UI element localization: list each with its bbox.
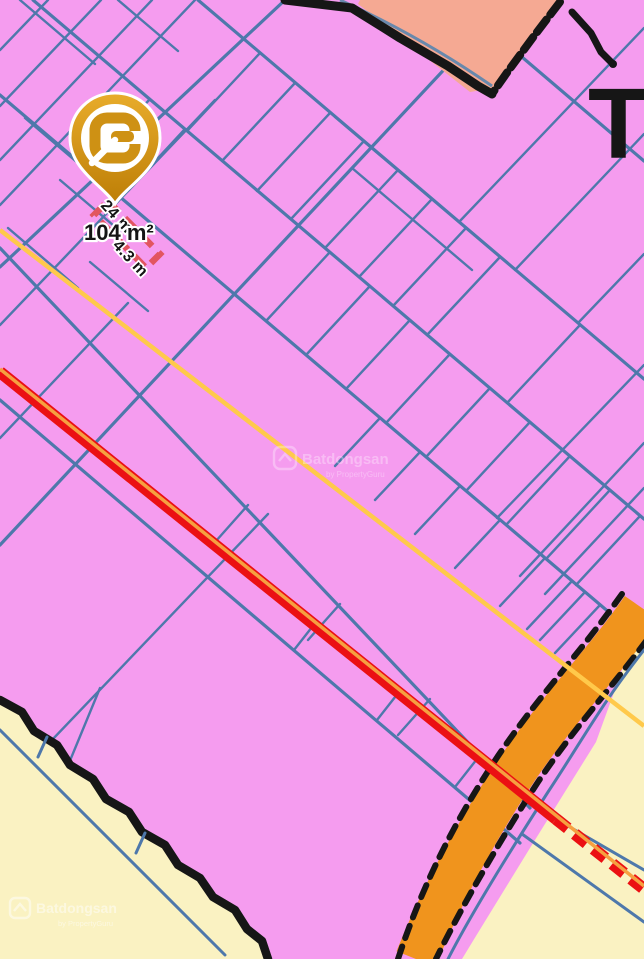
watermark-brand: Batdongsan bbox=[302, 451, 389, 468]
map-view[interactable]: T Batdongsan by PropertyGuru 24 m 4.3 m … bbox=[0, 0, 644, 959]
watermark-byline: by PropertyGuru bbox=[58, 919, 113, 928]
watermark-brand: Batdongsan bbox=[36, 900, 117, 916]
map-street-letter: T bbox=[588, 68, 644, 180]
parcel-area-label: 104 m² bbox=[84, 220, 154, 245]
watermark-byline: by PropertyGuru bbox=[326, 470, 385, 479]
zoning-map-canvas[interactable]: T Batdongsan by PropertyGuru 24 m 4.3 m … bbox=[0, 0, 644, 959]
